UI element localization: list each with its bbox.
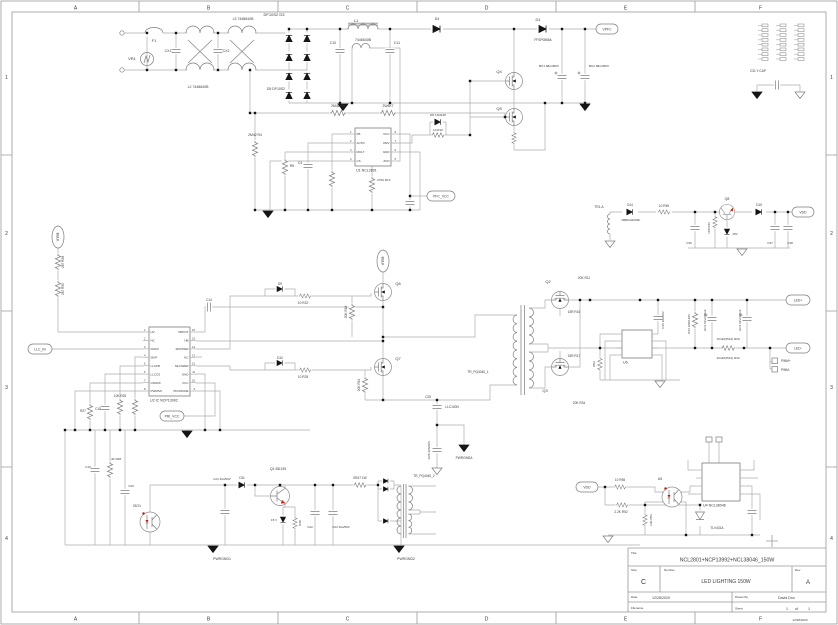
component-label: VR1	[128, 56, 137, 61]
ic-box	[702, 463, 740, 501]
svg-text:C: C	[346, 6, 350, 12]
component-label: 0R47 1W	[353, 476, 366, 480]
component-label: C19	[85, 465, 91, 469]
component-label: 15R R17	[568, 354, 581, 358]
component-label: C31 Y-CAP	[750, 69, 766, 73]
component-label: 15V	[732, 232, 737, 236]
component-label: D11	[239, 476, 245, 480]
svg-text:MULT: MULT	[357, 150, 365, 154]
number-value: LED LIGHTING 150W	[701, 579, 750, 585]
svg-text:2: 2	[5, 231, 8, 237]
component-label: EC3 63V/470uF	[703, 309, 707, 331]
component-label: 20K R34	[573, 401, 586, 405]
ac-neutral-terminal	[120, 68, 124, 72]
sheet-title: NCL2801+NCP13992+NCL38046_150W	[680, 558, 775, 564]
component-label: 10mR(2512) R30	[716, 356, 739, 360]
component-label: 2W4K7	[382, 104, 393, 108]
ground-open-icon	[737, 249, 747, 256]
svg-text:12: 12	[192, 362, 195, 366]
component-label: BC1 68u/450V	[539, 64, 560, 68]
net-label-layer: VPFCPFC_VCCBULKBULKLLC_INPRI_VCCLED+LED-…	[28, 24, 814, 492]
center-mark-icon	[766, 535, 778, 547]
component-label: C15	[95, 407, 101, 411]
size-label: Size	[631, 568, 637, 572]
ground-icon	[752, 92, 762, 99]
net-label-text: LED+	[794, 298, 803, 302]
component-label: Q8	[725, 197, 730, 201]
wires	[52, 29, 800, 545]
svg-text:PWMSS: PWMSS	[151, 389, 162, 393]
sheet-of: of	[795, 607, 798, 611]
svg-text:VCC: VCC	[383, 132, 390, 136]
svg-text:DRV: DRV	[383, 141, 389, 145]
svg-text:14: 14	[192, 345, 195, 349]
shunt-regulator-icon	[694, 511, 707, 523]
svg-text:6: 6	[144, 370, 146, 374]
component-label: Q2	[545, 279, 551, 284]
component-label: 13K R53	[649, 514, 653, 526]
component-label: 1K8 R43	[707, 222, 711, 234]
component-label: D4	[435, 17, 440, 21]
component-label: 10 R45	[659, 204, 670, 208]
svg-text:CS: CS	[357, 159, 361, 163]
component-label: PWRGNDA	[456, 456, 474, 460]
svg-text:2: 2	[144, 336, 146, 340]
dim-pin	[716, 437, 722, 442]
ground-open-icon	[603, 536, 613, 543]
svg-text:1: 1	[5, 75, 8, 81]
component-label: C14	[206, 298, 212, 302]
svg-text:8: 8	[395, 130, 397, 134]
component-label: C11	[394, 41, 400, 45]
net-label-text: LED-	[794, 346, 802, 350]
component-label: D9	[278, 282, 282, 286]
svg-text:3: 3	[830, 385, 833, 391]
component-label: 7446640B	[355, 38, 372, 42]
svg-text:HB: HB	[184, 339, 188, 343]
svg-text:VCC: VCC	[182, 381, 189, 385]
component-label: 10 R22	[298, 301, 309, 305]
drawnby-label: Drawn By	[735, 595, 749, 599]
component-label: R48	[298, 520, 302, 526]
ic-refdes: U2 IC NCP13992	[150, 399, 178, 403]
net-label-text: VPFC	[602, 27, 612, 31]
sheet-label: Sheet	[735, 607, 743, 611]
date-value: 12/28/2020	[652, 596, 670, 600]
dim-pin	[706, 437, 712, 442]
svg-text:C: C	[346, 617, 350, 623]
component-label: 20K R24	[357, 379, 361, 392]
svg-text:6: 6	[395, 148, 397, 152]
svg-text:13: 13	[192, 353, 195, 357]
ic-refdes: U1 NCL2801	[356, 169, 377, 173]
component-label: C35 104/50V	[661, 311, 665, 329]
svg-text:5: 5	[144, 362, 146, 366]
component-label: 267 R59	[61, 283, 65, 295]
component-label: C4	[298, 161, 302, 165]
component-label: EC4 63V/470uF	[738, 309, 742, 331]
svg-text:11: 11	[192, 370, 195, 374]
component-label: 267 R58	[61, 256, 65, 268]
component-label: Q6	[395, 281, 401, 286]
component-label: D10	[277, 356, 283, 360]
component-label: L3 7448640B	[233, 17, 254, 21]
component-label: C10	[330, 41, 336, 45]
ic-box	[149, 327, 190, 396]
component-label: D14	[627, 203, 633, 207]
sheet-number: 1	[786, 607, 788, 611]
svg-text:3: 3	[5, 385, 8, 391]
size-value: C	[641, 579, 646, 586]
svg-text:A: A	[74, 617, 78, 623]
svg-text:E: E	[624, 6, 628, 12]
component-label: R52	[592, 361, 596, 367]
net-label-text: BULK	[381, 257, 385, 267]
component-label: CX1	[165, 49, 172, 53]
component-label: D5 DF10S2	[267, 87, 285, 91]
drawnby-value: David Dou	[778, 596, 795, 600]
net-label-text: LLC_IN	[34, 347, 46, 351]
component-label: TR1-A	[594, 205, 604, 209]
svg-text:7: 7	[144, 379, 146, 383]
ground-open-icon	[605, 241, 615, 248]
component-label: CX2	[223, 49, 230, 53]
schematic-canvas: AABBCCDDEEFF11223344	[0, 0, 838, 625]
svg-text:SKIP: SKIP	[151, 355, 158, 359]
ic-refdes: U6	[623, 361, 628, 365]
filename-label: Filename	[631, 606, 644, 610]
component-label: LLC100N	[445, 405, 459, 409]
svg-text:7: 7	[395, 139, 397, 143]
svg-text:4: 4	[350, 157, 352, 161]
svg-text:3: 3	[144, 345, 146, 349]
ground-icon	[263, 211, 273, 218]
component-label: TR_PQ4040_1	[467, 370, 488, 374]
svg-text:16: 16	[192, 328, 195, 332]
component-label: 12/28/2020	[792, 618, 807, 622]
svg-text:9: 9	[194, 387, 196, 391]
component-label: R5	[290, 164, 294, 168]
pwm-minus-pin	[772, 367, 778, 373]
component-label: L1	[354, 18, 359, 23]
svg-text:MUPPER: MUPPER	[176, 347, 190, 351]
sheet-total: 1	[808, 607, 810, 611]
component-label: MBR2H100SF	[622, 218, 641, 222]
component-label: 2M42 R4	[248, 133, 262, 137]
component-label: 15 V	[271, 518, 277, 522]
svg-text:15: 15	[192, 336, 195, 340]
component-label: 4K R28	[111, 457, 121, 461]
component-label: C37	[767, 241, 773, 245]
svg-text:GND: GND	[182, 372, 190, 376]
component-label: C26 223/2KV	[427, 440, 431, 459]
number-label: Number	[664, 568, 675, 572]
svg-text:B: B	[207, 617, 211, 623]
component-label: 10K R26	[114, 394, 127, 398]
component-label: 10mR(2512) R29	[716, 337, 739, 341]
ground-icon	[459, 445, 469, 452]
svg-text:1: 1	[144, 328, 146, 332]
component-label: Q4	[496, 69, 502, 74]
svg-text:8: 8	[144, 387, 146, 391]
svg-text:4: 4	[5, 536, 8, 542]
svg-text:1: 1	[350, 130, 352, 134]
component-label: 2M42 R6	[331, 104, 345, 108]
svg-text:HV: HV	[151, 330, 155, 334]
component-label: U5	[658, 477, 663, 481]
component-label: C20	[128, 484, 134, 488]
svg-text:PFCMODE: PFCMODE	[174, 389, 189, 393]
net-label-text: VDD	[799, 210, 807, 214]
svg-text:F: F	[759, 617, 762, 623]
svg-text:ONOFF: ONOFF	[151, 381, 162, 385]
schematic-sheet: AABBCCDDEEFF11223344	[0, 0, 838, 625]
ground-icon	[182, 431, 192, 438]
ground-open-icon	[655, 381, 665, 388]
svg-text:4: 4	[144, 353, 146, 357]
svg-text:E: E	[624, 617, 628, 623]
net-label-text: PFC_VCC	[433, 194, 449, 198]
date-label: Date	[631, 595, 638, 599]
component-label: C36	[686, 241, 692, 245]
ic-refdes: U4 NCL38046	[703, 504, 726, 508]
component-label: FFSP0865A	[534, 38, 552, 42]
svg-text:4: 4	[830, 536, 833, 542]
svg-text:F: F	[759, 6, 762, 12]
component-label: PWRGND1	[213, 557, 231, 561]
component-label: 10 R55	[615, 478, 626, 482]
component-label: C23 10u/50V	[332, 525, 350, 529]
net-label-text: PRI_VCC	[165, 414, 180, 418]
pwm-plus-pin	[772, 358, 778, 364]
component-label: C25	[425, 395, 431, 399]
svg-text:ZCD: ZCD	[383, 159, 390, 163]
svg-text:D: D	[485, 6, 489, 12]
ground-icon	[208, 546, 218, 553]
component-label: ISO1	[133, 504, 141, 508]
netstub-layer	[758, 24, 804, 60]
svg-text:LLCCS: LLCCS	[151, 372, 161, 376]
component-label: PWM-	[781, 368, 790, 372]
svg-text:10: 10	[192, 379, 195, 383]
svg-text:A: A	[74, 6, 78, 12]
component-label: TR_PQ4040_2	[413, 474, 434, 478]
component-label: Q5	[496, 106, 502, 111]
title-label: Title	[631, 551, 637, 555]
components	[55, 25, 793, 532]
svg-text:VBOOT: VBOOT	[178, 330, 189, 334]
title-block: Title NCL2801+NCP13992+NCL38046_150W Siz…	[628, 535, 826, 612]
component-label: 10 R10	[433, 128, 443, 132]
component-label: DF10S2 D3	[264, 12, 286, 17]
component-label: 20K R18	[344, 306, 348, 319]
svg-text:FB: FB	[357, 132, 361, 136]
component-label: BC2 68u/450V	[589, 64, 610, 68]
component-label: PWRGND2	[397, 557, 415, 561]
net-label-text: BULK	[56, 233, 60, 243]
component-label: Q7	[395, 356, 401, 361]
rev-value: A	[806, 580, 810, 586]
component-label: TLV431A	[710, 526, 724, 530]
component-label: 2700 R13	[377, 178, 391, 182]
component-label: Q3	[542, 388, 548, 393]
svg-text:GND: GND	[383, 150, 391, 154]
component-label: D15	[756, 203, 762, 207]
ground-icon	[394, 546, 404, 553]
component-label: PWM+	[781, 359, 791, 363]
component-label: R44 10R/1206	[687, 314, 691, 334]
component-label: Q1 BD139	[270, 467, 286, 471]
component-label: L2 7448640B	[188, 85, 209, 89]
zone-labels: AABBCCDDEEFF11223344	[5, 6, 833, 623]
svg-text:B: B	[207, 6, 211, 12]
component-label: C38	[787, 241, 793, 245]
svg-text:MLOWER: MLOWER	[175, 364, 189, 368]
svg-text:ACTR: ACTR	[357, 141, 366, 145]
svg-text:1: 1	[830, 75, 833, 81]
component-label: R27	[80, 409, 86, 413]
svg-text:2: 2	[830, 231, 833, 237]
ground-icon	[580, 104, 590, 111]
ground-open-icon	[795, 92, 805, 99]
svg-text:D: D	[485, 617, 489, 623]
svg-text:5: 5	[395, 157, 397, 161]
component-label: D1	[535, 17, 541, 22]
component-label: 15R R16	[568, 310, 581, 314]
drawing-frame: AABBCCDDEEFF11223344	[1, 1, 837, 624]
rev-label: Rev	[795, 568, 801, 572]
svg-text:LLCFB: LLCFB	[151, 364, 160, 368]
svg-text:FMAX: FMAX	[151, 347, 159, 351]
component-label: F1	[152, 38, 157, 43]
component-label: 20K R11	[578, 276, 590, 280]
component-label: C24 10u/50V	[213, 477, 231, 481]
svg-text:2: 2	[350, 139, 352, 143]
component-label: C22	[307, 525, 313, 529]
component-label: 10 R25	[298, 375, 309, 379]
component-label: D6 1N4148	[430, 113, 446, 117]
svg-text:3: 3	[350, 148, 352, 152]
ac-line-terminal	[120, 31, 124, 35]
net-label-text: VDD	[583, 485, 591, 489]
component-label: 2.2K R52	[614, 510, 628, 514]
ic-box	[622, 330, 652, 358]
